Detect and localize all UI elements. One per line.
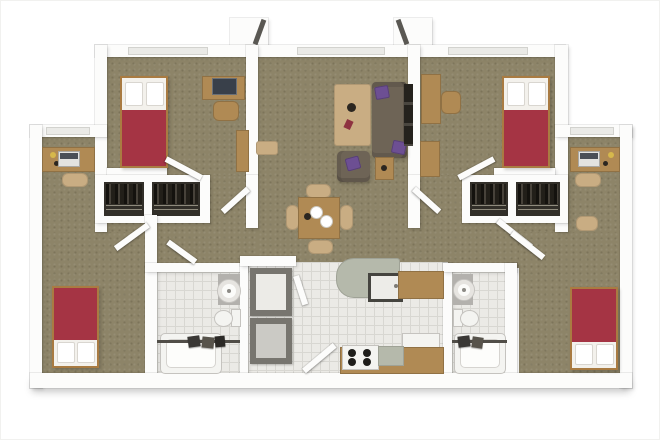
stacked-unit-bottom (250, 318, 292, 364)
dresser-top-right (420, 141, 440, 177)
wall-hall-left-vertical (246, 175, 258, 228)
bottle (304, 213, 311, 220)
wall-bottom (30, 373, 632, 388)
wall-stub-left (145, 215, 157, 373)
sink-left (217, 279, 241, 303)
bed-top-left (120, 76, 168, 168)
chair-alcove-left (62, 173, 88, 187)
dining-chair-north (306, 184, 331, 198)
pillow (507, 82, 525, 106)
bed-top-right (502, 76, 550, 168)
toilet-bowl-right (460, 310, 479, 327)
toilet-bowl-left (214, 310, 233, 327)
desk-item-notepad (608, 152, 614, 158)
stool-alcove-right (576, 216, 598, 231)
window-alcove-left (46, 127, 90, 135)
side-table (375, 157, 394, 180)
dining-chair-south (308, 240, 333, 254)
computer-monitor (212, 78, 237, 95)
media-unit (404, 84, 413, 146)
side-table-item (381, 165, 387, 171)
pillow (528, 82, 546, 106)
pillow (146, 82, 164, 106)
burner (363, 349, 371, 357)
wall-stub-right (505, 263, 517, 373)
pillow (596, 344, 614, 365)
pillow (125, 82, 143, 106)
window-bedroom-top-left (128, 47, 208, 55)
decor-red (343, 119, 353, 130)
burner (348, 358, 356, 366)
counter-green-south (378, 346, 404, 366)
desk-chair-top-right (441, 91, 461, 114)
wall-wing-left (30, 125, 42, 388)
towel (201, 336, 214, 348)
pillow (575, 344, 593, 365)
window-alcove-right (570, 127, 614, 135)
desk-bedroom-top-right (421, 74, 441, 124)
burner (363, 358, 371, 366)
bed-bottom-left (52, 286, 99, 368)
stacked-unit-top (250, 268, 292, 316)
wall-wing-right (620, 125, 632, 388)
dining-table (298, 197, 340, 239)
wall-laundry-top (240, 256, 296, 266)
decor-bowl (347, 103, 356, 112)
window-bedroom-top-right (448, 47, 528, 55)
chair-alcove-right (575, 173, 601, 187)
closet-right-2 (516, 182, 560, 216)
plate (320, 215, 333, 228)
bench-living (256, 141, 278, 155)
wall-hall-right-vertical (408, 175, 420, 228)
dining-chair-east (340, 205, 353, 230)
laptop-left (58, 151, 80, 167)
desk-item (603, 161, 608, 166)
desk-item-notepad (50, 152, 56, 158)
dresser-top-left (236, 130, 249, 172)
closet-left-2 (152, 182, 200, 216)
desk-chair-top-left (213, 101, 239, 121)
pillow (77, 342, 95, 363)
window-living-room (297, 47, 385, 55)
coffee-table (334, 84, 371, 146)
laptop-right (578, 151, 600, 167)
bed-bottom-right (570, 287, 618, 370)
wall-bathroom-left-top (145, 263, 248, 272)
closet-right-1 (470, 182, 508, 216)
pillow (57, 342, 75, 363)
sink-right (453, 279, 475, 301)
unit-door (256, 324, 286, 358)
floorplan-rendering (0, 0, 660, 440)
closet-left-1 (104, 182, 144, 216)
counter-top-right (398, 271, 444, 299)
range-stove (342, 345, 379, 370)
towel (215, 336, 226, 348)
wall-bathroom-left-right (240, 263, 248, 373)
towel (187, 335, 200, 348)
towel (471, 336, 483, 348)
towel (457, 335, 470, 347)
unit-door (256, 274, 286, 310)
sofa-pillow-top (374, 85, 390, 100)
burner (348, 349, 356, 357)
wall-bathroom-right-left (443, 263, 452, 373)
